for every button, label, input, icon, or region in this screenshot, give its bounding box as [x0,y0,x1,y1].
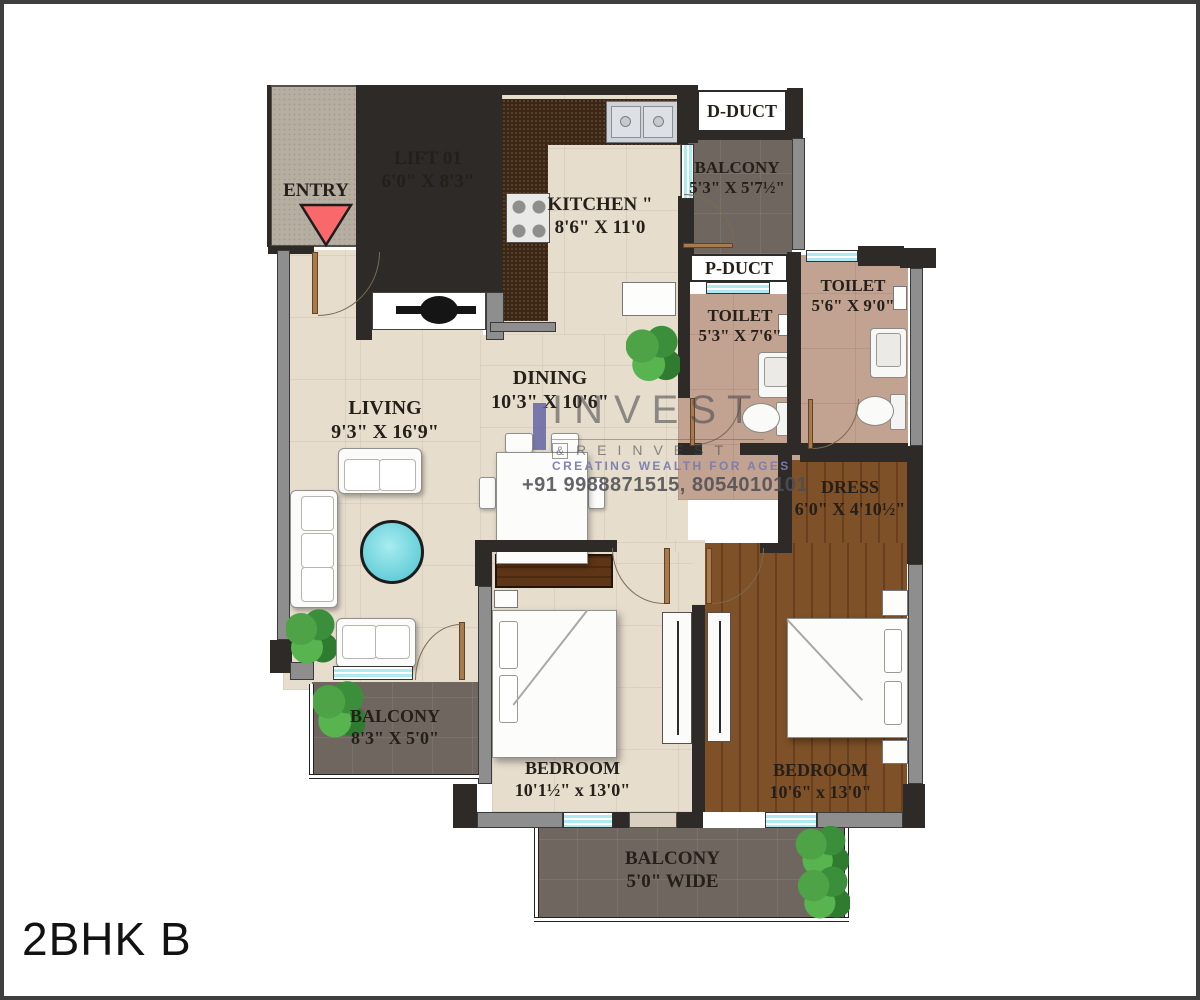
living-label: LIVING 9'3" X 16'9" [300,396,470,444]
sink-drain-right [653,116,664,127]
bedroom2-bed [787,618,908,738]
wall-segment [760,543,792,553]
dining-chair [588,477,605,509]
hallway-wardrobe [662,612,692,744]
bedroom1-door-leaf [664,548,670,604]
toilet-big-window [806,250,858,262]
wall-segment [792,138,805,250]
dress-label: DRESS 6'0" X 4'10½" [792,477,908,520]
kitchen-label: KITCHEN " 8'6" X 11'0 [536,194,664,240]
toilet-big-wc-bowl [856,396,894,426]
wall-segment [475,540,492,586]
washbasin-bowl [876,333,901,367]
plant-balcony-bottom [798,866,850,922]
pillow [884,681,902,725]
entry-label: ENTRY [276,180,356,203]
living-balcony-window [333,666,413,680]
bedroom1-window [563,812,613,828]
top-wall [356,85,698,95]
sofa-cushion [301,567,334,602]
sofa-three-seat-left [290,490,338,608]
sofa-cushion [301,496,334,531]
lift-bottom-wall [356,270,502,292]
wall-segment [267,85,271,247]
dining-label: DINING 10'3" X 10'6" [470,366,630,414]
wall-segment [678,130,794,140]
sofa-cushion [379,459,416,491]
pillow [499,621,518,669]
wall-segment [629,812,677,828]
wall-segment [907,446,923,564]
bedroom2-wardrobe [707,612,731,742]
washbasin-bowl [764,357,788,387]
bed-fold-line [787,619,863,700]
living-left-wall [277,250,290,640]
bedroom1-side-table [494,590,518,608]
bedroom2-nightstand-top [882,590,908,616]
entry-label-text: ENTRY [276,180,356,203]
wall-segment [486,292,504,340]
sofa-cushion [301,533,334,568]
wall-segment [800,450,910,462]
toilet-big-washbasin [870,328,907,378]
wall-segment [908,564,923,784]
wall-segment [677,812,703,828]
kitchen-sink [606,101,678,143]
bedroom2-label: BEDROOM 10'6" x 13'0" [748,760,893,803]
toilet-big-label: TOILET 5'6" X 9'0" [800,276,906,317]
wall-segment [903,784,925,828]
main-door-pivot-knob [420,296,458,324]
balcony-left-label: BALCONY 8'3" X 5'0" [320,706,470,749]
balcony-bottom-railing [534,828,539,922]
coffee-table-round [360,520,424,584]
plant-living-corner [286,608,336,668]
bedroom1-bed [492,610,617,758]
toilet-small-label: TOILET 5'3" X 7'6" [684,306,796,347]
balcony-top-label: BALCONY 5'3" X 5'7½" [686,158,788,199]
wall-segment [477,812,563,828]
wall-segment [490,322,556,332]
wall-segment [910,268,923,446]
sofa-two-seat-bottom [336,618,416,668]
balcony-left-railing [309,774,479,779]
wall-segment [778,453,792,553]
plant-dining [626,325,680,385]
dining-chair [505,433,533,453]
wall-segment [613,812,629,828]
p-duct-window [706,282,770,294]
pillow [499,675,518,723]
dining-chair [551,433,579,453]
pillow [884,629,902,673]
sofa-cushion [344,459,381,491]
sink-drain-left [620,116,631,127]
wall-segment [900,248,936,268]
toilet-small-wc-bowl [742,403,780,433]
bedroom-divider-wall [692,605,705,812]
wall-segment [475,540,617,552]
sofa-cushion [375,625,410,659]
sofa-cushion [342,625,377,659]
bed-fold-line [513,610,588,705]
bedroom1-label: BEDROOM 10'1½" x 13'0" [500,758,645,801]
p-duct-label: P-DUCT [692,258,786,280]
floorplan-canvas: ENTRY D-DUCT BALCONY 5'3" X 5'7½" P-DUCT… [0,0,1200,1000]
lift-label: LIFT 01 6'0" X 8'3" [366,148,490,194]
d-duct-label: D-DUCT [699,101,785,123]
dining-chair [479,477,496,509]
kitchen-appliance [622,282,676,316]
plan-title: 2BHK B [22,912,192,966]
sofa-two-seat-top [338,448,422,494]
wall-segment [858,246,904,266]
wall-segment [787,252,801,452]
wall-segment [478,586,492,784]
entry-arrow-icon [298,202,354,248]
balcony-bottom-label: BALCONY 5'0" WIDE [580,848,765,894]
wall-segment [453,784,477,828]
